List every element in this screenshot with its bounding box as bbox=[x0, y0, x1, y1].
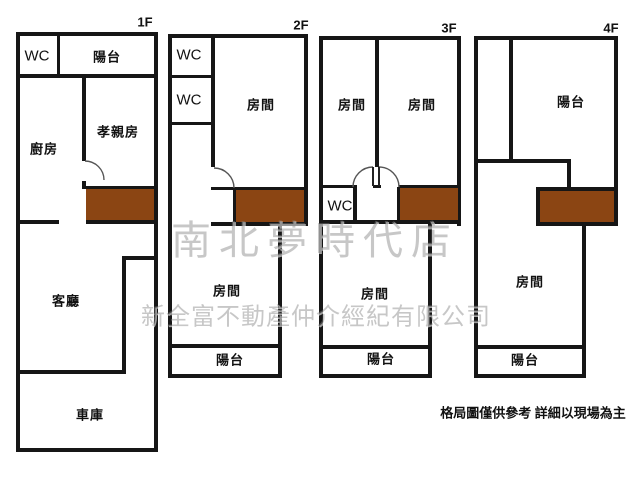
wall-segment bbox=[211, 34, 215, 167]
floor-plan-canvas: 1F 2F 3F 4F WC 陽台 廚房 孝親房 客廳 車庫 WC WC 房間 … bbox=[0, 0, 634, 480]
room-label-1f-garage: 車庫 bbox=[76, 405, 104, 424]
floor-tag-4f: 4F bbox=[603, 21, 618, 36]
wall-segment bbox=[319, 185, 357, 188]
wall-segment bbox=[122, 256, 126, 374]
room-label-1f-kitchen: 廚房 bbox=[30, 139, 58, 158]
wall-segment bbox=[16, 74, 158, 78]
wall-segment bbox=[536, 222, 618, 226]
wall-segment bbox=[474, 374, 586, 378]
room-label-2f-balcony: 陽台 bbox=[216, 350, 244, 369]
floor-tag-2f: 2F bbox=[293, 18, 308, 33]
wall-segment bbox=[82, 74, 86, 161]
room-label-2f-wc-lower: WC bbox=[177, 92, 202, 109]
floor-tag-3f: 3F bbox=[441, 21, 456, 36]
wall-segment bbox=[86, 220, 158, 224]
wall-segment bbox=[168, 34, 308, 38]
room-label-3f-room-front-left: 房間 bbox=[338, 95, 366, 114]
room-label-1f-living-room: 客廳 bbox=[52, 291, 80, 310]
room-label-4f-room-rear: 房間 bbox=[516, 272, 544, 291]
floor-tag-1f: 1F bbox=[137, 15, 152, 30]
wall-segment bbox=[16, 32, 158, 36]
wall-segment bbox=[304, 34, 308, 226]
room-label-4f-balcony-front: 陽台 bbox=[557, 92, 585, 111]
room-label-2f-wc-upper: WC bbox=[177, 47, 202, 64]
wall-segment bbox=[57, 32, 60, 77]
staircase-block-4f bbox=[540, 191, 614, 222]
wall-segment bbox=[168, 374, 282, 378]
wall-segment bbox=[16, 32, 20, 452]
room-label-3f-room-front-right: 房間 bbox=[408, 95, 436, 114]
wall-segment bbox=[474, 345, 586, 349]
room-label-3f-balcony: 陽台 bbox=[367, 349, 395, 368]
wall-segment bbox=[16, 448, 158, 452]
wall-segment bbox=[319, 374, 432, 378]
wall-segment bbox=[509, 36, 513, 162]
wall-segment bbox=[168, 344, 282, 348]
staircase-block-1f bbox=[86, 189, 154, 220]
watermark-company-name: 新全富不動產仲介經紀有限公司 bbox=[141, 297, 491, 332]
wall-segment bbox=[582, 226, 586, 378]
wall-segment bbox=[16, 370, 126, 374]
disclaimer-note: 格局圖僅供參考 詳細以現場為主 bbox=[440, 403, 626, 422]
room-label-1f-wc: WC bbox=[25, 48, 50, 65]
room-label-1f-balcony: 陽台 bbox=[93, 47, 121, 66]
wall-segment bbox=[375, 36, 379, 167]
wall-segment bbox=[474, 159, 570, 163]
wall-segment bbox=[168, 75, 215, 78]
wall-segment bbox=[614, 36, 618, 226]
wall-segment bbox=[154, 32, 158, 452]
watermark-store-name: 南北夢時代店 bbox=[171, 208, 459, 266]
wall-segment bbox=[168, 122, 215, 125]
room-label-2f-room-front: 房間 bbox=[247, 95, 275, 114]
wall-segment bbox=[122, 256, 158, 260]
wall-segment bbox=[474, 36, 618, 40]
room-label-1f-parents-room: 孝親房 bbox=[97, 122, 139, 141]
room-label-4f-balcony-rear: 陽台 bbox=[511, 350, 539, 369]
wall-segment bbox=[16, 220, 59, 224]
wall-segment bbox=[319, 36, 461, 40]
wall-segment bbox=[373, 185, 381, 188]
